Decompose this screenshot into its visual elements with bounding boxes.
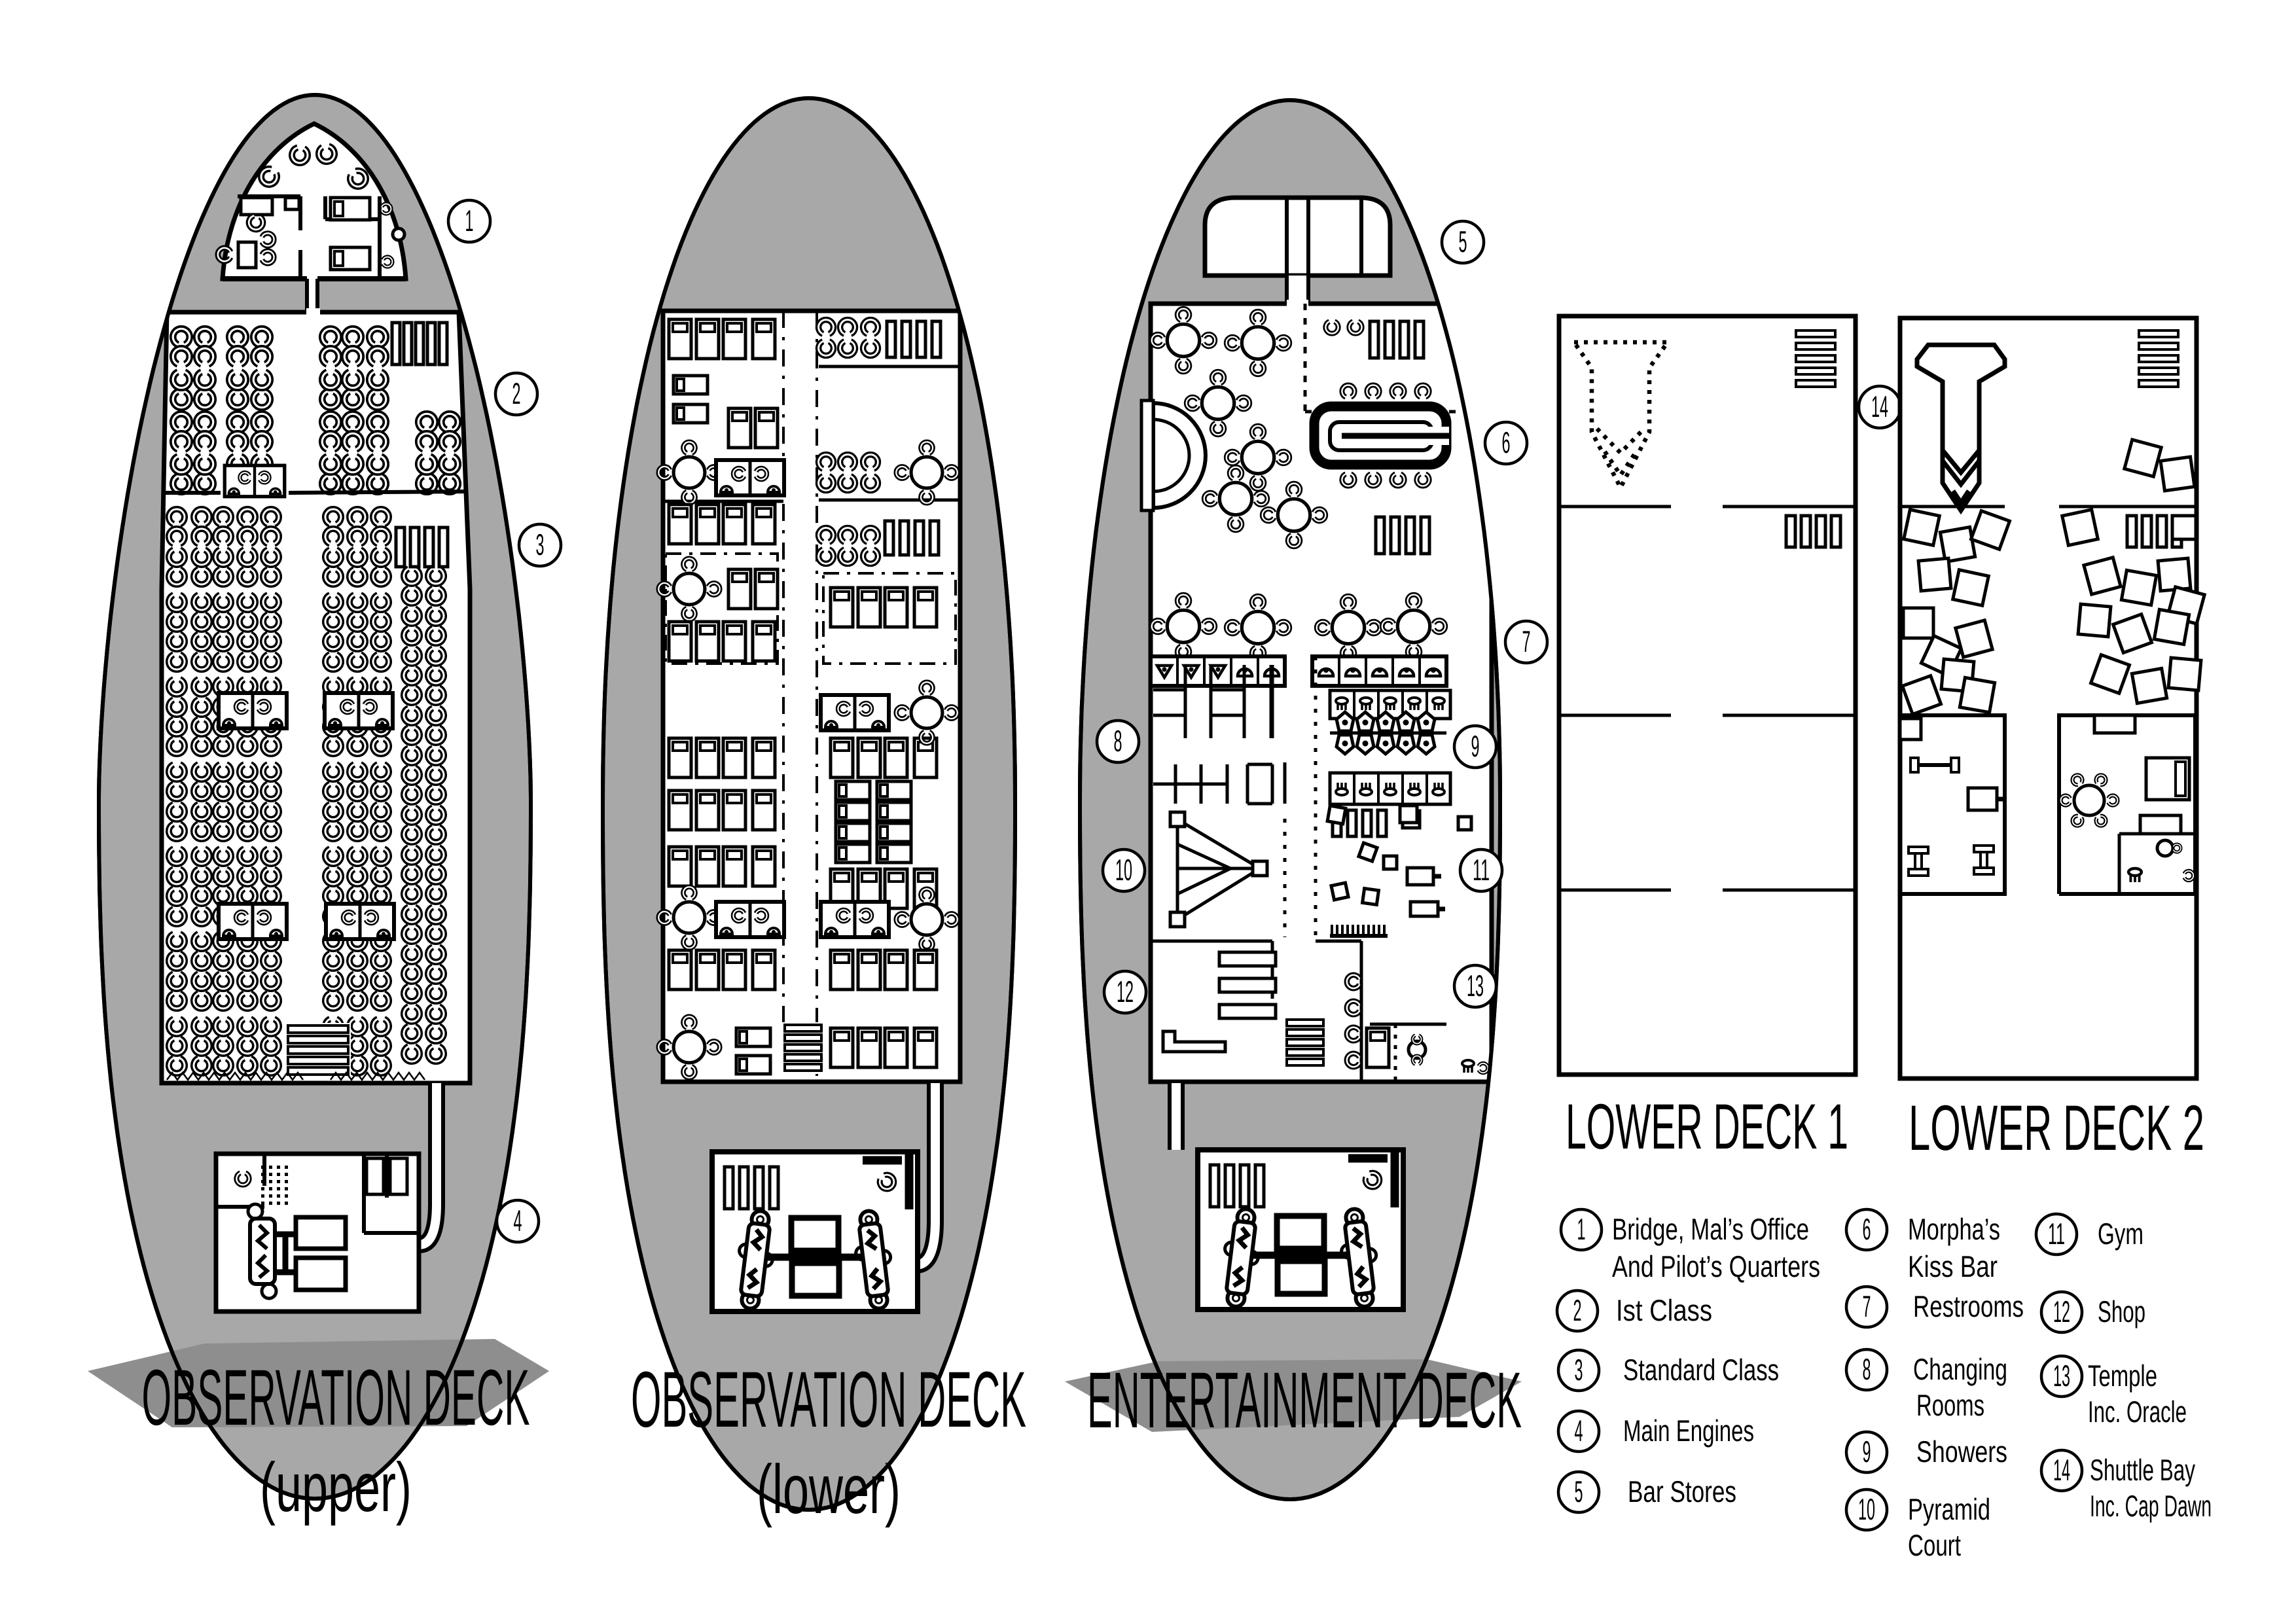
svg-text:2: 2 <box>512 376 521 410</box>
svg-text:Court: Court <box>1908 1528 1961 1562</box>
svg-text:Showers: Showers <box>1916 1435 2007 1469</box>
svg-text:Morpha’s: Morpha’s <box>1908 1212 2000 1246</box>
svg-text:LOWER DECK 2: LOWER DECK 2 <box>1909 1092 2204 1164</box>
svg-text:Inc. Cap Dawn: Inc. Cap Dawn <box>2090 1489 2212 1523</box>
svg-text:11: 11 <box>1473 853 1490 887</box>
svg-text:9: 9 <box>1471 729 1480 763</box>
svg-text:7: 7 <box>1863 1289 1871 1323</box>
svg-text:Pyramid: Pyramid <box>1908 1492 1990 1526</box>
svg-text:Standard Class: Standard Class <box>1623 1353 1779 1387</box>
svg-text:6: 6 <box>1502 425 1511 459</box>
svg-text:7: 7 <box>1522 624 1531 658</box>
svg-text:13: 13 <box>2053 1359 2070 1393</box>
svg-text:OBSERVATION DECK: OBSERVATION DECK <box>631 1355 1026 1444</box>
svg-text:Rooms: Rooms <box>1916 1388 1984 1422</box>
svg-text:12: 12 <box>1117 974 1134 1008</box>
svg-text:11: 11 <box>2048 1217 2065 1251</box>
svg-text:Kiss Bar: Kiss Bar <box>1908 1249 1998 1283</box>
svg-text:10: 10 <box>1115 853 1132 887</box>
svg-text:(upper): (upper) <box>260 1449 412 1526</box>
svg-text:6: 6 <box>1863 1212 1871 1246</box>
svg-text:1: 1 <box>1577 1212 1586 1246</box>
svg-text:OBSERVATION DECK: OBSERVATION DECK <box>142 1353 530 1442</box>
svg-text:LOWER DECK 1: LOWER DECK 1 <box>1566 1090 1848 1162</box>
svg-text:1: 1 <box>465 204 474 238</box>
svg-text:Shuttle Bay: Shuttle Bay <box>2090 1453 2195 1487</box>
svg-text:3: 3 <box>1575 1353 1583 1387</box>
svg-text:13: 13 <box>1467 969 1484 1003</box>
svg-text:8: 8 <box>1863 1352 1871 1386</box>
svg-text:(lower): (lower) <box>757 1451 901 1528</box>
svg-text:ENTERTAINMENT DECK: ENTERTAINMENT DECK <box>1087 1355 1522 1444</box>
svg-text:Temple: Temple <box>2088 1359 2157 1393</box>
svg-text:8: 8 <box>1114 724 1122 758</box>
svg-text:9: 9 <box>1863 1435 1871 1469</box>
svg-text:Ist Class: Ist Class <box>1616 1293 1712 1327</box>
svg-text:2: 2 <box>1573 1293 1582 1327</box>
svg-text:Bar Stores: Bar Stores <box>1628 1474 1736 1508</box>
svg-text:Changing: Changing <box>1913 1352 2007 1386</box>
svg-text:Restrooms: Restrooms <box>1913 1289 2024 1323</box>
svg-text:Main Engines: Main Engines <box>1623 1414 1754 1448</box>
svg-text:10: 10 <box>1858 1492 1875 1526</box>
svg-text:14: 14 <box>1871 389 1888 423</box>
svg-text:12: 12 <box>2053 1294 2070 1329</box>
svg-text:3: 3 <box>536 527 545 562</box>
svg-text:5: 5 <box>1575 1474 1583 1508</box>
svg-text:And Pilot’s Quarters: And Pilot’s Quarters <box>1612 1249 1820 1283</box>
svg-text:4: 4 <box>1575 1414 1583 1448</box>
svg-text:4: 4 <box>514 1204 522 1238</box>
svg-text:Gym: Gym <box>2098 1217 2144 1251</box>
svg-text:14: 14 <box>2053 1453 2070 1487</box>
svg-text:Bridge, Mal’s Office: Bridge, Mal’s Office <box>1612 1212 1809 1246</box>
svg-text:Shop: Shop <box>2098 1294 2145 1329</box>
svg-text:Inc. Oracle: Inc. Oracle <box>2088 1395 2187 1429</box>
svg-text:5: 5 <box>1459 224 1467 259</box>
